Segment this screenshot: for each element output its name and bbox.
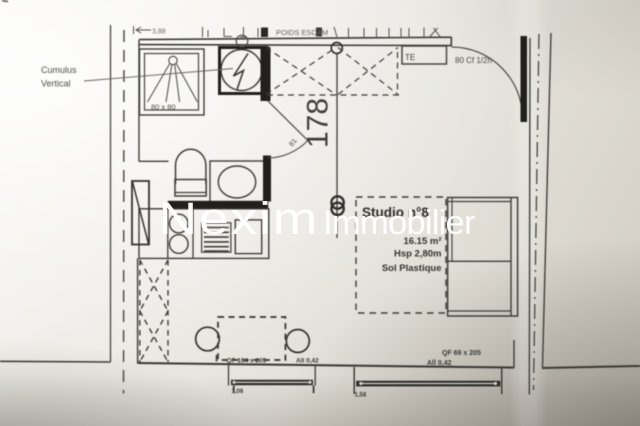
svg-text:Nexim: Nexim	[159, 194, 320, 244]
svg-text:Immobilier: Immobilier	[323, 204, 475, 242]
